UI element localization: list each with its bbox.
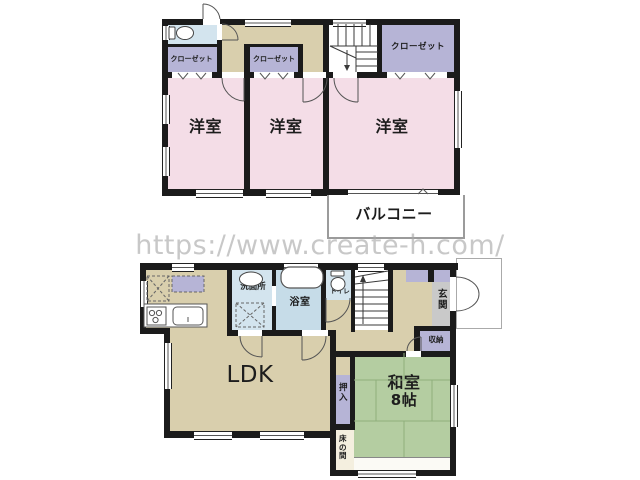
engawa-strip [354,457,454,471]
bathroom-label: 浴室 [277,297,323,309]
hallway-1f-understairs [352,328,392,353]
closet-3-label: クローゼット [381,43,455,53]
shoe-cabinet-1 [406,270,428,282]
japanese-room-size-label: 8帖 [354,392,454,409]
entrance-label: 玄関 [438,290,448,312]
floor-plan: バルコニー クローゼット クローゼット クローゼット 洋室 洋室 洋室 http… [0,0,640,480]
storage-label: 収納 [420,336,452,345]
oshiire-label: 押入 [339,384,348,404]
entrance-porch [456,258,502,329]
western-room-1-label: 洋室 [166,118,245,136]
stairs-1f-area [355,268,388,330]
western-room-3-label: 洋室 [329,118,455,136]
tokonoma-label: 床の間 [339,435,347,461]
watermark: https://www.create-h.com/ [108,230,532,261]
balcony-label: バルコニー [330,206,458,223]
closet-2-label: クローゼット [249,55,299,63]
washroom [231,268,275,332]
toilet-2f-room [166,24,217,46]
closet-1-label: クローゼット [166,55,217,63]
japanese-room-label: 和室 [354,374,454,392]
toilet-label: トイレ [326,288,354,295]
stairs-2f-area [330,24,378,73]
ldk-label: LDK [200,362,300,388]
washroom-label: 洗面所 [231,283,275,293]
kitchen-area [145,268,230,332]
western-room-2-label: 洋室 [249,118,323,136]
